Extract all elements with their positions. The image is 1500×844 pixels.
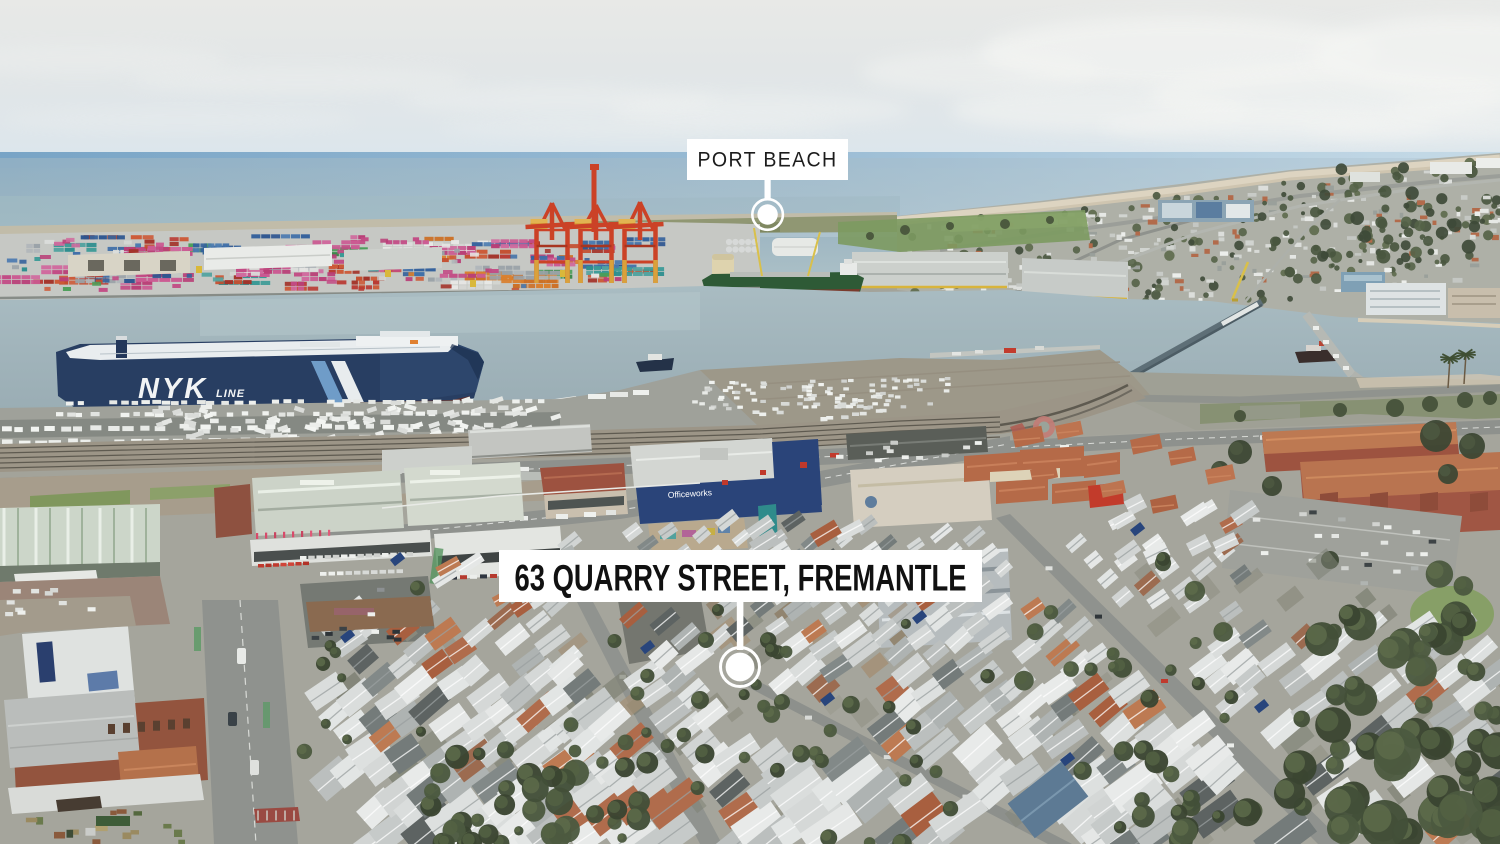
- svg-text:63 QUARRY STREET, FREMANTLE: 63 QUARRY STREET, FREMANTLE: [515, 558, 967, 599]
- svg-text:PORT BEACH: PORT BEACH: [698, 148, 838, 172]
- svg-text:LINE: LINE: [216, 388, 245, 400]
